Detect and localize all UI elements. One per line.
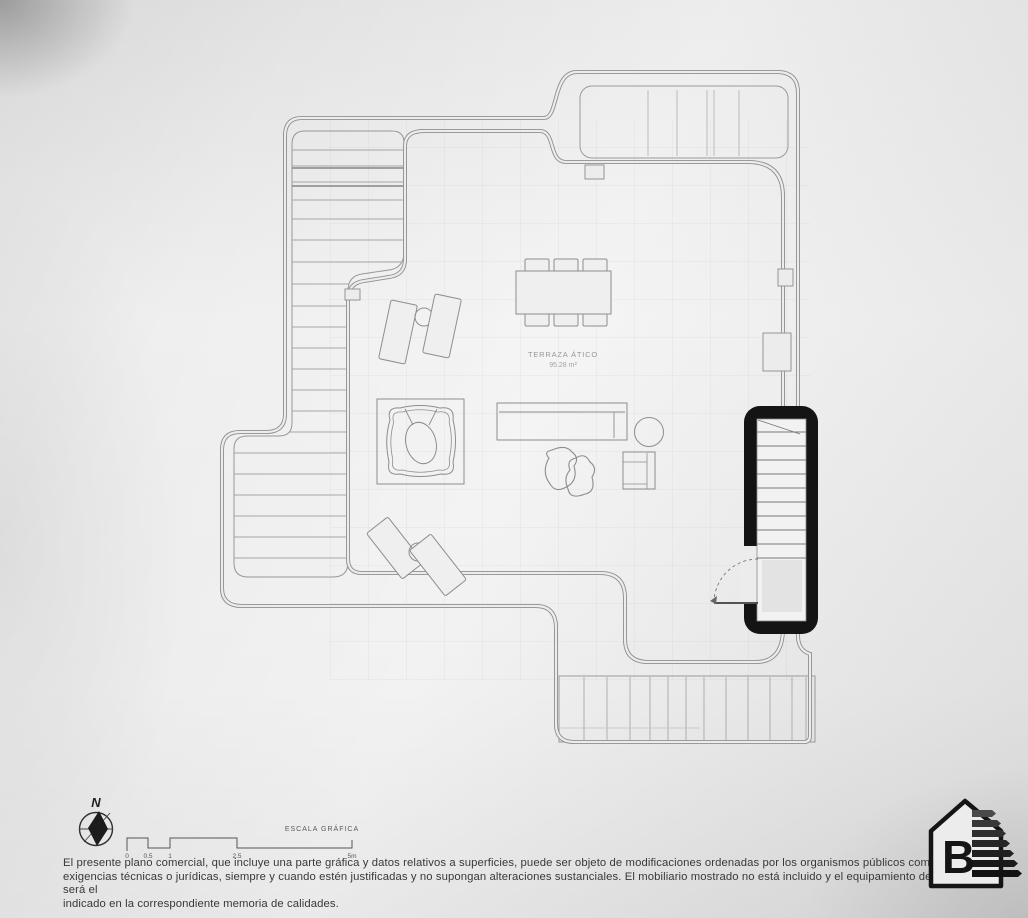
energy-rating-icon: B [0,0,1028,918]
energy-rating-letter: B [942,831,975,883]
floor-plan-page: N ESCALA GRÁFICA 0 0.5 1 2.5 5m TERRAZA … [0,0,1028,918]
energy-rating-bars [972,810,1022,877]
